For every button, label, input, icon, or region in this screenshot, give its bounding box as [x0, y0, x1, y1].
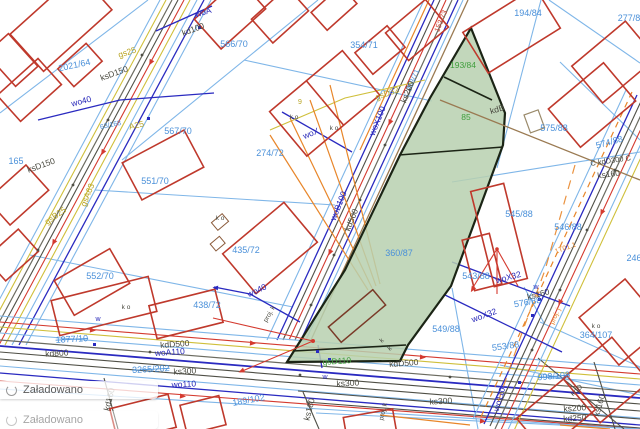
- map-label: 551/70: [141, 176, 169, 186]
- map-label: 193/84: [450, 60, 476, 70]
- toast-notification: Załadowano: [0, 411, 158, 429]
- map-label: 354/71: [350, 40, 378, 50]
- map-label: ksD150: [26, 155, 57, 174]
- map-label: woA110: [153, 346, 185, 358]
- map-label: gsD110: [322, 355, 352, 367]
- map-label: ks300: [173, 365, 196, 376]
- map-label: 552/70: [86, 271, 114, 281]
- loading-spinner-icon: [6, 415, 17, 426]
- map-label: 545/88: [505, 209, 533, 219]
- map-label: k o: [216, 215, 225, 222]
- map-label: w: [94, 316, 101, 323]
- map-label: 2021/64: [57, 57, 91, 74]
- map-label: gsD32: [374, 84, 401, 102]
- map-label: gsA63: [78, 182, 96, 208]
- map-label: ks300: [336, 377, 359, 388]
- map-label: 566/70: [220, 39, 248, 49]
- map-label: 438/72: [193, 300, 221, 310]
- map-label: w: [321, 374, 328, 381]
- map-label: k o: [290, 114, 299, 121]
- map-label: 435/72: [232, 245, 260, 255]
- map-label: 543/88: [462, 271, 490, 281]
- loading-spinner-icon: [6, 385, 17, 396]
- map-label: kdD500: [389, 357, 419, 369]
- map-label: w: [532, 284, 539, 291]
- map-label: gs25: [117, 44, 138, 59]
- map-label: kd800: [45, 347, 69, 358]
- map-label: ksD150: [99, 63, 130, 82]
- map-label: proj. k: [262, 304, 277, 323]
- map-label: 274/72: [256, 148, 284, 158]
- map-label: 3265/202: [132, 363, 170, 375]
- map-label: 360/87: [385, 248, 413, 258]
- map-label: 567/70: [164, 126, 192, 136]
- map-label: 165: [8, 156, 23, 166]
- map-label: woA: [193, 5, 213, 20]
- toast-notification: Załadowano: [0, 381, 158, 399]
- map-label: 1T01.1: [554, 242, 577, 256]
- cadastral-map-canvas[interactable]: 2021/6463/168165566/70567/70551/70552/70…: [0, 0, 640, 429]
- map-label: ks160: [597, 167, 621, 180]
- map-label: 194/84: [514, 8, 542, 18]
- map-label: k o: [122, 304, 131, 311]
- map-label: 364/107: [580, 330, 613, 340]
- map-label: 63/168: [99, 120, 122, 131]
- map-label: k o: [330, 125, 339, 132]
- map-label: kdD: [568, 382, 584, 398]
- map-label: wo110: [170, 378, 196, 389]
- toast-text: Załadowano: [23, 414, 83, 426]
- map-label: 9: [298, 99, 302, 106]
- map-label: 575/88: [540, 123, 568, 133]
- map-label: ks300: [429, 395, 452, 406]
- map-label: A25: [128, 119, 145, 132]
- map-label: 246: [626, 253, 640, 263]
- toast-text: Załadowano: [23, 384, 83, 396]
- map-label: 277/8: [618, 13, 640, 23]
- map-label: k o: [592, 323, 601, 330]
- map-label: 546/88: [554, 222, 582, 232]
- map-viewport[interactable]: 2021/6463/168165566/70567/70551/70552/70…: [0, 0, 640, 429]
- map-label: wo40: [69, 94, 92, 109]
- map-label: 85: [461, 112, 471, 122]
- map-label: 549/88: [432, 324, 460, 334]
- map-label: kd250: [563, 412, 587, 423]
- map-label: woX: [300, 125, 320, 141]
- map-label: 1877/10: [55, 333, 88, 345]
- map-label: ks200: [398, 79, 416, 104]
